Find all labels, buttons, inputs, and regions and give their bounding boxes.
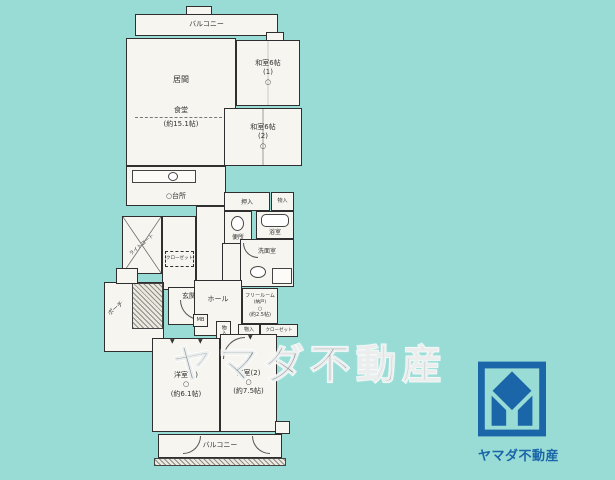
bathtub-icon <box>261 214 289 227</box>
brand-logo: ヤマダ不動産 <box>478 361 568 464</box>
washer-box <box>272 268 292 284</box>
closet-mid: クローゼット <box>165 251 194 267</box>
yamada-logo-icon <box>478 361 546 437</box>
balcony-bottom-hatch <box>154 458 286 466</box>
living-dining-divider <box>135 117 227 118</box>
watermark-text: ヤマダ不動産 <box>172 332 448 390</box>
oshiire-closet: 押入 <box>224 192 270 211</box>
storage-top-label: 物入 <box>277 198 287 205</box>
kitchen-label: ○台所 <box>166 192 186 201</box>
washitsu-1-mark: ○ <box>265 78 271 87</box>
washitsu-2: 和室6帖 (2) ○ <box>224 108 302 166</box>
free-room-label: フリールーム <box>245 293 275 300</box>
toilet-icon <box>231 216 244 231</box>
oshiire-label: 押入 <box>241 199 253 207</box>
balcony-top: バルコニー <box>135 14 278 36</box>
brand-logo-text: ヤマダ不動産 <box>478 445 568 464</box>
bath-label: 浴室 <box>269 229 281 237</box>
floorplan-canvas: バルコニー 居間 食堂 (約15.1帖) 和室6帖 (1) ○ 和室6帖 (2)… <box>0 0 615 480</box>
washitsu-2-mark: ○ <box>260 142 266 151</box>
porch-hatch <box>132 283 163 329</box>
light-court: ライトコート <box>122 216 162 274</box>
basin-icon <box>250 266 266 278</box>
step-box <box>275 421 290 434</box>
mb-label: MB <box>197 317 205 324</box>
mb-box: MB <box>193 314 208 327</box>
free-room-size: (約2.5帖) <box>249 312 271 319</box>
washitsu-1-num: (1) <box>263 68 273 77</box>
hall-label: ホール <box>208 295 229 304</box>
porch-box <box>116 268 138 284</box>
storage-top: 物入 <box>271 192 294 211</box>
kitchen-sink-icon <box>168 172 178 181</box>
washitsu-1: 和室6帖 (1) ○ <box>236 40 300 106</box>
living-room: 居間 食堂 (約15.1帖) <box>126 38 236 166</box>
bedroom-1-size: (約6.1帖) <box>171 390 202 399</box>
closet-mid-label: クローゼット <box>166 256 193 262</box>
washitsu-1-label: 和室6帖 <box>255 59 280 68</box>
living-label: 居間 <box>173 75 189 85</box>
washitsu-2-label: 和室6帖 <box>250 123 275 132</box>
kitchen-counter <box>132 170 196 183</box>
balcony-top-label: バルコニー <box>189 20 224 29</box>
washitsu-2-num: (2) <box>258 132 268 141</box>
washroom-label: 洗面室 <box>258 248 276 256</box>
porch-label: ポーチ <box>107 300 126 318</box>
living-size: (約15.1帖) <box>163 120 198 129</box>
free-room: フリールーム (納戸) ○ (約2.5帖) <box>242 288 278 324</box>
dining-label: 食堂 <box>174 106 188 115</box>
balcony-bottom-label: バルコニー <box>203 441 238 450</box>
